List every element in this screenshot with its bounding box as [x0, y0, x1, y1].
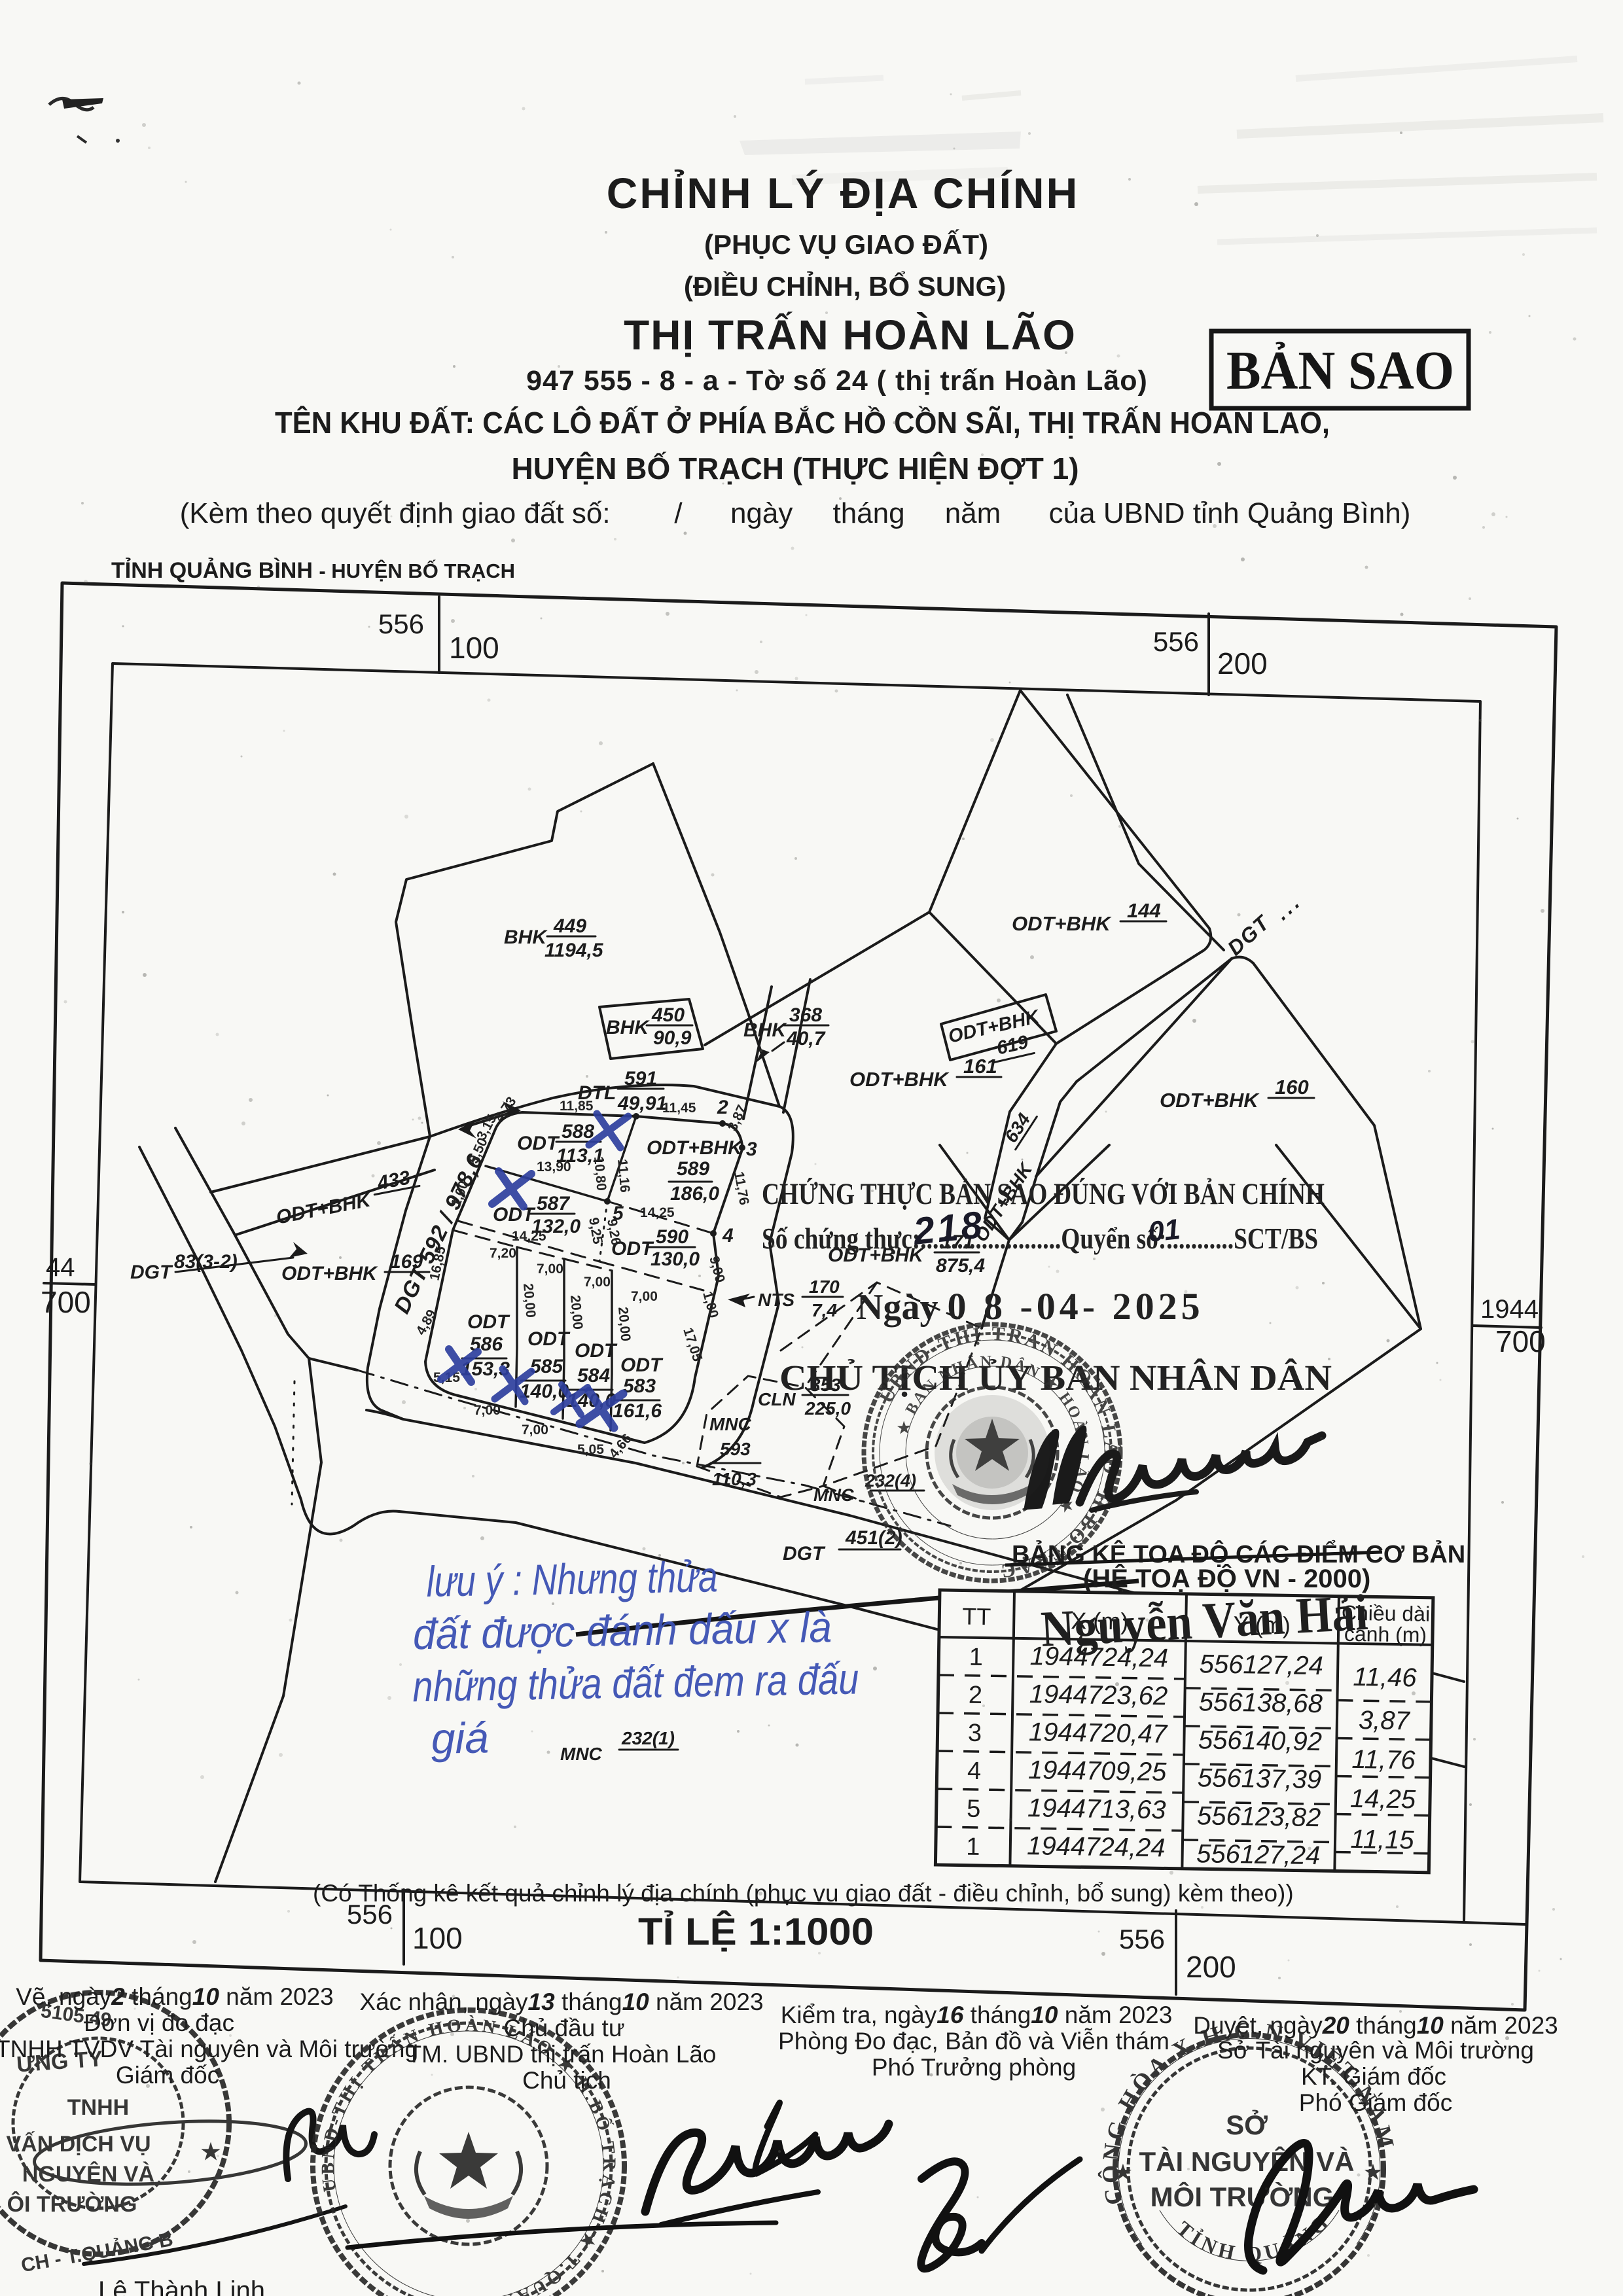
svg-text:(Có Thống kê kết quả chỉnh lý: (Có Thống kê kết quả chỉnh lý địa chính …: [313, 1880, 1294, 1907]
svg-text:11,45: 11,45: [662, 1101, 696, 1116]
svg-text:BẢN SAO: BẢN SAO: [1226, 340, 1454, 401]
svg-text:14,25: 14,25: [1350, 1784, 1417, 1814]
svg-text:1944720,47: 1944720,47: [1029, 1718, 1169, 1748]
svg-text:4: 4: [967, 1757, 982, 1785]
svg-text:HUYỆN BỐ TRẠCH (THỰC HIỆN ĐỢT: HUYỆN BỐ TRẠCH (THỰC HIỆN ĐỢT 1): [511, 451, 1079, 486]
svg-text:7,00: 7,00: [537, 1262, 563, 1277]
svg-text:5: 5: [967, 1795, 981, 1823]
svg-text:9,25: 9,25: [586, 1216, 605, 1246]
svg-text:giá: giá: [431, 1713, 489, 1763]
svg-text:Lê Thành Linh: Lê Thành Linh: [98, 2276, 265, 2296]
svg-text:556: 556: [1153, 626, 1199, 657]
svg-text:585: 585: [530, 1356, 563, 1377]
svg-text:11,85: 11,85: [560, 1099, 594, 1114]
svg-text:Phòng Đo đạc, Bản đồ và Viễn t: Phòng Đo đạc, Bản đồ và Viễn thám: [778, 2028, 1169, 2055]
svg-text:đất được đánh dấu x là: đất được đánh dấu x là: [412, 1602, 832, 1658]
svg-text:1944723,62: 1944723,62: [1029, 1680, 1168, 1710]
svg-text:40,7: 40,7: [786, 1028, 826, 1050]
svg-text:★: ★: [201, 2140, 221, 2164]
svg-text:ODT+BHK: ODT+BHK: [849, 1068, 950, 1091]
svg-text:20,00: 20,00: [567, 1294, 585, 1330]
svg-text:433: 433: [375, 1167, 412, 1194]
svg-text:TÀI NGUYÊN VÀ: TÀI NGUYÊN VÀ: [1139, 2146, 1354, 2177]
svg-text:200: 200: [1217, 646, 1268, 680]
svg-text:700: 700: [1495, 1324, 1546, 1358]
svg-text:90,9: 90,9: [653, 1027, 692, 1049]
svg-text:Phó Trưởng phòng: Phó Trưởng phòng: [872, 2054, 1076, 2081]
svg-text:7,4: 7,4: [811, 1300, 837, 1320]
svg-text:1944713,63: 1944713,63: [1027, 1793, 1166, 1824]
svg-text:7,00: 7,00: [584, 1275, 611, 1290]
svg-text:ODT+BHK: ODT+BHK: [1160, 1089, 1260, 1112]
svg-text:700: 700: [41, 1285, 91, 1319]
svg-text:DGT: DGT: [1223, 910, 1275, 960]
svg-text:ODT+BHK: ODT+BHK: [1012, 912, 1112, 935]
svg-text:590: 590: [656, 1226, 688, 1248]
svg-text:218: 218: [911, 1203, 987, 1253]
svg-text:NTS: NTS: [758, 1290, 794, 1310]
svg-text:(ĐIỀU CHỈNH, BỔ SUNG): (ĐIỀU CHỈNH, BỔ SUNG): [684, 270, 1006, 302]
svg-text:556127,24: 556127,24: [1196, 1839, 1321, 1870]
svg-text:7,00: 7,00: [474, 1403, 501, 1418]
svg-text:450: 450: [651, 1004, 685, 1026]
svg-text:ODT+BHK: ODT+BHK: [274, 1189, 374, 1229]
svg-text:TÊN KHU ĐẤT: CÁC LÔ ĐẤT Ở PHÍA: TÊN KHU ĐẤT: CÁC LÔ ĐẤT Ở PHÍA BẮC HỒ CỒ…: [275, 406, 1330, 440]
svg-text:2: 2: [717, 1097, 728, 1118]
svg-text:1944709,25: 1944709,25: [1028, 1756, 1168, 1786]
svg-text:Số chứng thực:................: Số chứng thực:.......................Quy…: [762, 1222, 1318, 1255]
svg-text:lưu ý : Nhưng thửa: lưu ý : Nhưng thửa: [426, 1552, 718, 1606]
svg-text:130,0: 130,0: [651, 1248, 700, 1270]
svg-text:ODT+BHK: ODT+BHK: [946, 1006, 1043, 1047]
svg-text:10,80: 10,80: [591, 1156, 609, 1191]
svg-text:1: 1: [969, 1644, 983, 1671]
svg-text:ODT+BHK: ODT+BHK: [281, 1263, 378, 1284]
svg-text:161,6: 161,6: [613, 1400, 662, 1422]
svg-text:BHK: BHK: [606, 1017, 650, 1038]
svg-text:BHK: BHK: [743, 1019, 787, 1041]
svg-text:20,00: 20,00: [520, 1282, 538, 1318]
svg-text:Ngày 0 8 -04- 2025: Ngày 0 8 -04- 2025: [857, 1285, 1204, 1328]
svg-text:MNC: MNC: [709, 1414, 752, 1434]
svg-text:947 555 - 8 - a - Tờ số 24 ( t: 947 555 - 8 - a - Tờ số 24 ( thị trấn Ho…: [526, 365, 1148, 397]
svg-text:14,25: 14,25: [640, 1205, 675, 1220]
svg-text:144: 144: [1127, 899, 1161, 922]
svg-text:3: 3: [968, 1720, 982, 1747]
svg-text:4,66: 4,66: [606, 1431, 635, 1461]
svg-text:những thửa đất đem ra đấu: những thửa đất đem ra đấu: [412, 1654, 859, 1710]
svg-text:588: 588: [562, 1121, 594, 1142]
svg-text:(PHỤC VỤ GIAO ĐẤT): (PHỤC VỤ GIAO ĐẤT): [704, 229, 988, 260]
svg-text:DGT: DGT: [130, 1262, 173, 1283]
svg-text:587: 587: [537, 1193, 570, 1214]
svg-text:ODT: ODT: [467, 1311, 510, 1333]
svg-text:4: 4: [722, 1225, 734, 1246]
svg-text:★: ★: [1115, 2162, 1132, 2183]
svg-text:556: 556: [1119, 1924, 1165, 1954]
svg-text:THỊ TRẤN HOÀN LÃO: THỊ TRẤN HOÀN LÃO: [624, 311, 1077, 359]
svg-text:161: 161: [963, 1055, 997, 1078]
svg-text:186,0: 186,0: [670, 1183, 719, 1205]
svg-text:584: 584: [577, 1365, 610, 1386]
svg-text:49,91: 49,91: [617, 1093, 667, 1114]
svg-text:13,90: 13,90: [537, 1159, 571, 1174]
svg-text:ÔI TRƯỜNG: ÔI TRƯỜNG: [7, 2191, 137, 2217]
svg-text:TỈ LỆ 1:1000: TỈ LỆ 1:1000: [638, 1911, 874, 1953]
svg-text:591: 591: [624, 1068, 657, 1089]
svg-text:556: 556: [378, 609, 424, 639]
svg-text:11,76: 11,76: [731, 1171, 752, 1207]
svg-text:(Kèm theo quyết định giao đất: (Kèm theo quyết định giao đất số: / ngày…: [180, 497, 1411, 529]
svg-text:11,16: 11,16: [615, 1158, 632, 1193]
svg-text:634: 634: [1001, 1109, 1035, 1146]
svg-text:DGT: DGT: [783, 1543, 826, 1564]
svg-text:44: 44: [46, 1253, 75, 1282]
svg-text:110,3: 110,3: [712, 1469, 757, 1489]
svg-text:556127,24: 556127,24: [1199, 1650, 1323, 1680]
svg-text:449: 449: [553, 915, 586, 937]
svg-text:Xác nhận, ngày13 tháng10 năm 2: Xác nhận, ngày13 tháng10 năm 2023: [359, 1988, 763, 2015]
svg-text:83(3-2): 83(3-2): [174, 1251, 238, 1273]
svg-text:556123,82: 556123,82: [1197, 1801, 1321, 1832]
svg-text:TT: TT: [962, 1603, 991, 1631]
svg-text:BHK: BHK: [504, 927, 548, 948]
svg-text:1: 1: [966, 1833, 980, 1861]
svg-text:7,00: 7,00: [631, 1289, 658, 1304]
svg-text:225,0: 225,0: [804, 1398, 851, 1419]
svg-text:ODT: ODT: [575, 1340, 618, 1362]
svg-text:...: ...: [1270, 889, 1306, 925]
svg-text:2: 2: [969, 1682, 983, 1709]
svg-text:368: 368: [789, 1004, 822, 1026]
svg-text:875,4: 875,4: [936, 1255, 985, 1277]
svg-text:3,87: 3,87: [1359, 1706, 1411, 1735]
svg-text:556140,92: 556140,92: [1198, 1725, 1323, 1756]
svg-text:★: ★: [1364, 2162, 1382, 2183]
svg-text:100: 100: [449, 631, 499, 665]
svg-text:583: 583: [623, 1375, 656, 1397]
svg-text:1,00: 1,00: [700, 1290, 721, 1319]
svg-text:3: 3: [746, 1139, 757, 1160]
svg-text:100: 100: [412, 1921, 463, 1955]
svg-text:7,20: 7,20: [490, 1246, 516, 1261]
svg-text:CHỈNH LÝ ĐỊA CHÍNH: CHỈNH LÝ ĐỊA CHÍNH: [607, 169, 1080, 217]
svg-text:SỞ: SỞ: [1226, 2109, 1268, 2140]
svg-text:MNC: MNC: [560, 1744, 603, 1764]
svg-text:11,15: 11,15: [1350, 1825, 1415, 1855]
svg-text:200: 200: [1186, 1950, 1236, 1984]
svg-text:ƯNG TY: ƯNG TY: [16, 2046, 104, 2077]
svg-text:170: 170: [809, 1277, 840, 1297]
svg-text:556137,39: 556137,39: [1198, 1763, 1322, 1794]
svg-text:589: 589: [677, 1158, 709, 1180]
svg-text:593: 593: [720, 1439, 751, 1459]
svg-text:01: 01: [1147, 1213, 1182, 1248]
svg-text:232(1): 232(1): [621, 1728, 675, 1748]
svg-text:ODT+BHK: ODT+BHK: [647, 1137, 743, 1159]
svg-text:11,76: 11,76: [1351, 1745, 1416, 1775]
svg-text:7,00: 7,00: [522, 1422, 548, 1438]
svg-text:556138,68: 556138,68: [1198, 1687, 1323, 1718]
svg-text:20,00: 20,00: [615, 1306, 633, 1341]
svg-text:160: 160: [1275, 1076, 1309, 1099]
svg-text:9,00: 9,00: [706, 1254, 728, 1284]
svg-text:14,25: 14,25: [512, 1229, 546, 1244]
svg-text:TNHH: TNHH: [67, 2095, 129, 2120]
svg-text:11,46: 11,46: [1353, 1663, 1418, 1693]
svg-text:TỈNH QUẢNG BÌNH - HUYỆN BỐ TRẠ: TỈNH QUẢNG BÌNH - HUYỆN BỐ TRẠCH: [111, 558, 515, 583]
svg-text:CHỨNG THỰC BẢN SAO ĐÚNG VỚI BẢ: CHỨNG THỰC BẢN SAO ĐÚNG VỚI BẢN CHÍNH: [762, 1177, 1325, 1211]
svg-text:ODT: ODT: [620, 1354, 664, 1376]
svg-text:Kiểm tra, ngày16 tháng10 năm 2: Kiểm tra, ngày16 tháng10 năm 2023: [781, 2002, 1173, 2028]
svg-text:MNC: MNC: [813, 1485, 854, 1505]
svg-text:ODT: ODT: [527, 1328, 571, 1350]
svg-text:1944: 1944: [1480, 1295, 1539, 1324]
svg-text:1944724,24: 1944724,24: [1027, 1831, 1166, 1862]
svg-text:5,05: 5,05: [577, 1442, 604, 1457]
svg-text:ODT: ODT: [517, 1133, 560, 1154]
svg-text:1194,5: 1194,5: [544, 940, 604, 961]
